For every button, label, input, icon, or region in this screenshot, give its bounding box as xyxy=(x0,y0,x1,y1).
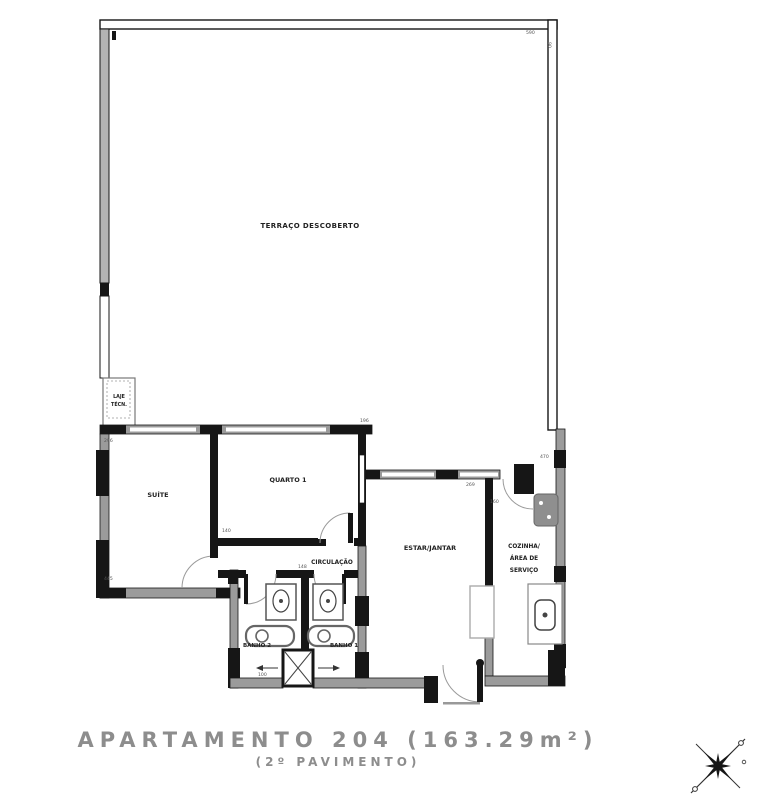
window xyxy=(460,473,498,477)
terrace-top-wall xyxy=(100,20,557,29)
dim-590: 590 xyxy=(526,30,535,36)
terrace-right-wall xyxy=(548,20,557,430)
terrace-label: TERRAÇO DESCOBERTO xyxy=(260,222,359,230)
terrace-corner-tick xyxy=(112,31,116,40)
laje-label-line1: LAJE xyxy=(113,394,125,400)
wall-seg xyxy=(554,450,566,468)
estar-counter xyxy=(470,586,494,638)
compass-tip-marker xyxy=(739,741,744,746)
stove-burner xyxy=(539,501,543,505)
stove-burner xyxy=(547,515,551,519)
quarto-door-leaf xyxy=(348,513,353,543)
compass-tip-marker xyxy=(693,787,698,792)
wall-seg xyxy=(355,596,369,626)
apartment-title: APARTAMENTO 204 (163.29m²) xyxy=(0,728,676,752)
wall-seg xyxy=(366,470,380,479)
floor-plan-drawing: LAJE TÉCN. xyxy=(0,0,770,800)
title-block: APARTAMENTO 204 (163.29m²) (2º PAVIMENTO… xyxy=(0,728,676,769)
entry-step-block xyxy=(424,676,438,703)
window xyxy=(130,428,196,432)
entry-door-leaf xyxy=(477,665,483,702)
dim-140: 140 xyxy=(222,528,231,534)
banho1-label: BANHO 1 xyxy=(330,643,358,649)
compass-tip-marker xyxy=(742,760,746,764)
wall-seg xyxy=(100,425,126,434)
estar-kitchen-divider xyxy=(485,478,493,600)
terrace-left-wall-cap xyxy=(100,283,109,296)
entry-door-hinge xyxy=(476,659,484,667)
terrace-left-wall-upper xyxy=(100,29,109,283)
wall-seg xyxy=(200,425,222,434)
dim-148: 148 xyxy=(298,564,307,570)
arrow-right-head xyxy=(333,665,340,671)
bottom-wall xyxy=(230,678,283,688)
dimension-labels: 296 196 140 269 160 470 100 445 148 590 … xyxy=(104,30,552,678)
terrace-left-wall-lower xyxy=(100,296,109,378)
wall-seg xyxy=(100,588,126,598)
wall-seg xyxy=(228,570,238,584)
banho2-label: BANHO 2 xyxy=(243,643,271,649)
laje-tecnica: LAJE TÉCN. xyxy=(103,378,135,428)
dim-470: 470 xyxy=(540,454,549,460)
dim-296: 296 xyxy=(104,438,113,444)
wall-seg xyxy=(548,650,565,686)
banho2-door-leaf xyxy=(244,574,248,604)
stove xyxy=(534,494,558,526)
window xyxy=(382,473,434,477)
door-jamb xyxy=(312,539,326,546)
wall-seg xyxy=(554,566,566,582)
circulacao-label: CIRCULAÇÃO xyxy=(311,559,353,566)
wall-seg xyxy=(436,470,458,479)
window xyxy=(226,428,326,432)
compass-star xyxy=(704,752,732,780)
door-opening xyxy=(246,570,276,578)
kitchen-sink-drain xyxy=(543,613,548,618)
door-opening xyxy=(314,570,344,578)
quarto-bottom-wall xyxy=(218,538,318,546)
entry-door-arc xyxy=(443,665,480,702)
dim-269: 269 xyxy=(466,482,475,488)
dim-160: 160 xyxy=(490,499,499,505)
dim-100: 100 xyxy=(258,672,267,678)
suite-label: SUÍTE xyxy=(147,490,168,499)
window xyxy=(360,455,365,503)
quarto-door-arc xyxy=(320,513,350,543)
banho2-drain xyxy=(279,599,283,603)
suite-door-leaf xyxy=(210,548,218,558)
quarto1-label: QUARTO 1 xyxy=(269,476,307,484)
estar-label: ESTAR/JANTAR xyxy=(404,544,456,552)
fixtures xyxy=(246,494,562,686)
suite-window-block xyxy=(96,450,109,496)
floor-subtitle: (2º PAVIMENTO) xyxy=(0,755,676,769)
dim-445: 445 xyxy=(104,576,113,582)
entry-threshold xyxy=(443,702,480,705)
cozinha-label-3: SERVIÇO xyxy=(510,568,538,574)
dim-196: 196 xyxy=(360,418,369,424)
bottom-wall xyxy=(313,678,430,688)
arrow-left-head xyxy=(256,665,263,671)
cozinha-label-2: ÁREA DE xyxy=(510,555,538,562)
banho1-drain xyxy=(326,599,330,603)
suite-door-arc xyxy=(182,556,214,588)
cozinha-label-1: COZINHA/ xyxy=(508,544,541,550)
compass-rose xyxy=(691,739,746,793)
floor-plan-sheet: LAJE TÉCN. xyxy=(0,0,770,800)
dim-90: 90 xyxy=(546,42,552,48)
suite-quarto-divider xyxy=(210,434,218,546)
kitchen-column xyxy=(514,464,534,494)
